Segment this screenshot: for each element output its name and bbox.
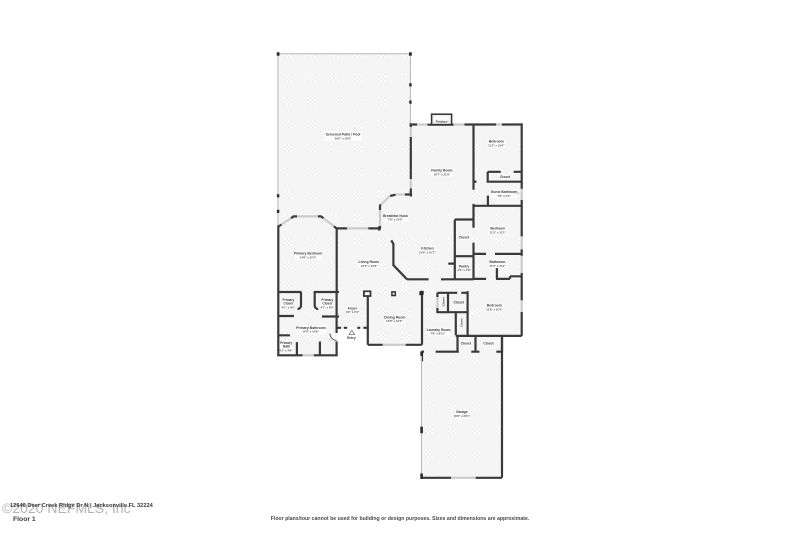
svg-text:Closet: Closet <box>461 342 472 346</box>
svg-text:4'1" x 6'5": 4'1" x 6'5" <box>282 306 296 310</box>
svg-text:12'8" x 10'4": 12'8" x 10'4" <box>486 308 503 312</box>
svg-text:10'8" x 20'1": 10'8" x 20'1" <box>454 414 471 418</box>
svg-text:14'6" x 10'7": 14'6" x 10'7" <box>419 251 436 255</box>
svg-text:11'3" x 4'11": 11'3" x 4'11" <box>489 264 506 268</box>
svg-text:4'1" x 6'5": 4'1" x 6'5" <box>321 306 335 310</box>
svg-text:14'8" x 17'9": 14'8" x 17'9" <box>300 255 317 259</box>
svg-text:Closet: Closet <box>500 175 511 179</box>
svg-text:16'7" x 21'8": 16'7" x 21'8" <box>434 172 451 176</box>
svg-text:11'2" x 13'4": 11'2" x 13'4" <box>488 144 505 148</box>
svg-text:7'8" x 9'11": 7'8" x 9'11" <box>430 332 445 336</box>
svg-text:7'8" x 5'0": 7'8" x 5'0" <box>497 194 511 198</box>
svg-text:16'5" x 13'6": 16'5" x 13'6" <box>361 264 378 268</box>
svg-text:7'8" x 10'5": 7'8" x 10'5" <box>388 218 404 222</box>
svg-text:26'5" x 19'0": 26'5" x 19'0" <box>335 137 352 141</box>
svg-text:3'6" x 4'8": 3'6" x 4'8" <box>458 268 472 272</box>
svg-text:11'2" x 11'1": 11'2" x 11'1" <box>490 230 507 234</box>
svg-text:Closet: Closet <box>483 342 494 346</box>
svg-text:Closet: Closet <box>454 301 465 305</box>
svg-text:Closet: Closet <box>441 297 445 306</box>
svg-text:4'9" x 6'3": 4'9" x 6'3" <box>346 310 360 314</box>
svg-text:Entry: Entry <box>347 336 356 340</box>
svg-text:Closet: Closet <box>459 318 463 327</box>
svg-text:4'1" x 4'9": 4'1" x 4'9" <box>279 348 293 352</box>
svg-text:Fireplace: Fireplace <box>436 120 448 124</box>
svg-text:Closet: Closet <box>459 236 470 240</box>
svg-text:10'8" x 12'3": 10'8" x 12'3" <box>386 319 403 323</box>
svg-text:14'8" x 10'6": 14'8" x 10'6" <box>302 330 319 334</box>
